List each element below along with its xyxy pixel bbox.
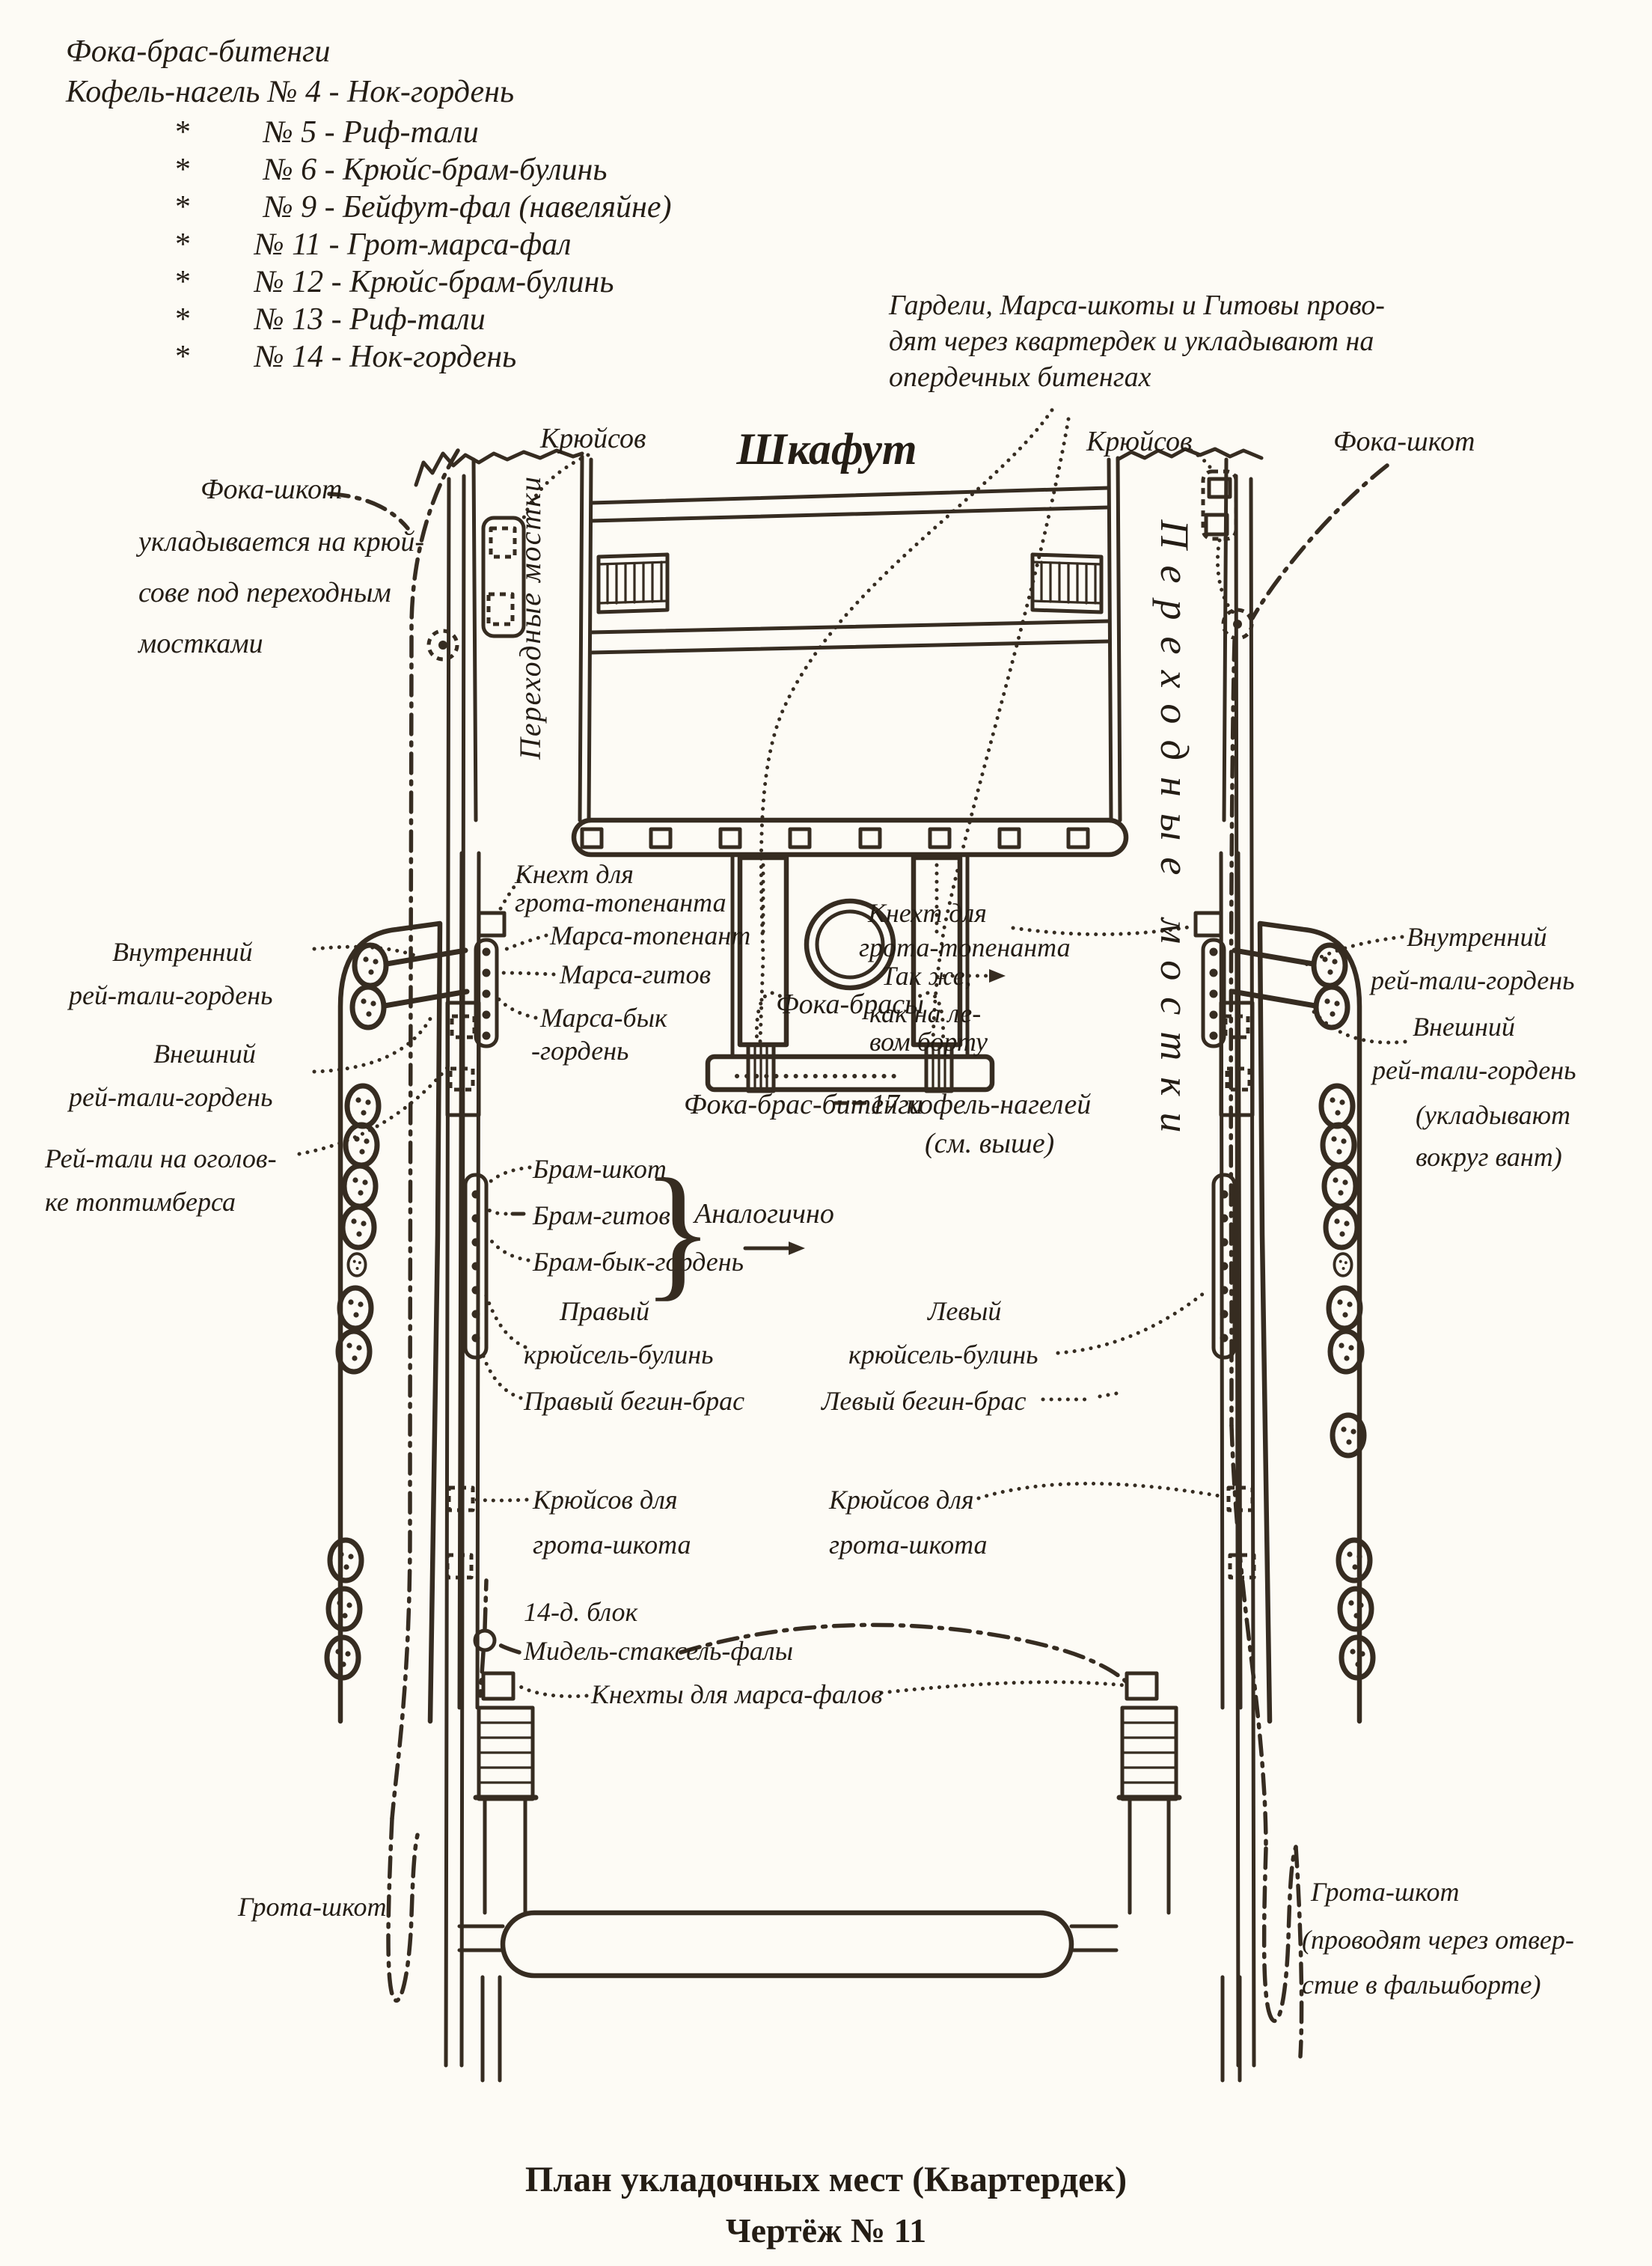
label-kryusov-grota-left: Крюйсов для xyxy=(532,1485,678,1515)
list-item: № 14 - Нок-гордень xyxy=(253,340,516,374)
label-vnesh-right: рей-тали-гордень xyxy=(1370,1055,1576,1085)
brace-glyph: } xyxy=(642,1149,714,1314)
caption-title: План укладочных мест (Квартердек) xyxy=(525,2160,1127,2199)
label-kryusov-grota-right: Крюйсов для xyxy=(828,1485,974,1515)
label-vnutr-left: Внутренний xyxy=(112,937,253,967)
label-knehty-marsa: Кнехты для марса-фалов xyxy=(590,1679,883,1709)
label-vnesh-right: (укладывают xyxy=(1416,1100,1570,1130)
waist-title: Шкафут xyxy=(735,424,917,474)
label-vnesh-right: Внешний xyxy=(1413,1012,1515,1042)
list-item: № 13 - Риф-тали xyxy=(253,302,486,337)
list-item: № 11 - Грот-марса-фал xyxy=(253,227,572,262)
label-vnutr-right: рей-тали-гордень xyxy=(1368,965,1575,995)
label-blok: 14-д. блок xyxy=(524,1597,639,1627)
label-foka-note: сове под переходным xyxy=(138,577,391,608)
belaying-plan-drawing: Фока-брас-битенги Кофель-нагель № 4 - Но… xyxy=(0,0,1652,2266)
label-grota-shkot-right: (проводят через отвер- xyxy=(1302,1925,1574,1955)
caption-number: Чертёж № 11 xyxy=(726,2211,926,2250)
label-foka-note: мостками xyxy=(137,628,263,659)
label-grota-shkot-right: стие в фальшборте) xyxy=(1302,1970,1541,2000)
star-mark: * xyxy=(174,115,189,150)
list-item: № 12 - Крюйс-брам-булинь xyxy=(253,265,614,299)
label-takzhe: Так же, xyxy=(881,961,972,991)
label-kneht-left: Кнехт для xyxy=(514,859,634,889)
label-grota-shkot-left: Грота-шкот xyxy=(237,1892,387,1922)
list-item: № 5 - Риф-тали xyxy=(262,115,479,150)
label-kryusov-grota-left: грота-шкота xyxy=(533,1530,691,1560)
label-takzhe: как на ле- xyxy=(869,998,981,1028)
list-title: Фока-брас-битенги xyxy=(66,34,330,69)
caption: План укладочных мест (Квартердек) Чертёж… xyxy=(525,2160,1127,2250)
brace-bitt-bar xyxy=(708,1057,992,1090)
label-marsa-gitov: Марса-гитов xyxy=(559,959,711,989)
label-kneht-left: грота-топенанта xyxy=(515,888,726,917)
routing-note: Гардели, Марса-шкоты и Гитовы прово- дят… xyxy=(888,290,1385,393)
label-nageli: 17 кофель-нагелей xyxy=(871,1089,1091,1120)
scanned-page: Фока-брас-битенги Кофель-нагель № 4 - Но… xyxy=(0,0,1652,2266)
star-mark: * xyxy=(174,153,189,187)
label-kryusov-right: Крюйсов xyxy=(1086,426,1192,457)
label-kneht-right: грота-топенанта xyxy=(859,932,1071,962)
brace-block-left xyxy=(748,1045,774,1091)
label-vnutr-left: рей-тали-гордень xyxy=(67,980,273,1010)
list-intro: Кофель-нагель № 4 - Нок-гордень xyxy=(65,75,514,109)
label-vnutr-right: Внутренний xyxy=(1407,922,1547,952)
star-mark: * xyxy=(174,340,189,374)
star-mark: * xyxy=(174,190,189,225)
label-levyi-kryusel: Левый xyxy=(927,1296,1001,1326)
label-analogichno: Аналогично xyxy=(692,1198,834,1230)
label-grota-shkot-right: Грота-шкот xyxy=(1310,1877,1460,1907)
label-kneht-right: Кнехт для xyxy=(867,898,987,928)
grating-left xyxy=(599,555,667,612)
label-pravyi-kryusel: Правый xyxy=(559,1296,649,1326)
svg-text:опердечных битенгах: опердечных битенгах xyxy=(889,361,1151,393)
label-foka-note: укладывается на крюй- xyxy=(135,526,424,558)
star-mark: * xyxy=(174,302,189,337)
label-pravyi-kryusel: крюйсель-булинь xyxy=(524,1340,713,1369)
star-mark: * xyxy=(174,227,189,262)
label-gangway-right: Переходные мостки xyxy=(1152,519,1197,1149)
label-nageli: (см. выше) xyxy=(925,1128,1054,1159)
label-kryusov-grota-right: грота-шкота xyxy=(829,1530,988,1560)
list-item: № 6 - Крюйс-брам-булинь xyxy=(262,153,607,187)
label-pravyi-begin: Правый бегин-брас xyxy=(523,1386,744,1416)
right-bulwark xyxy=(1233,476,1373,2065)
grating-right xyxy=(1032,555,1101,612)
label-foka-note: Фока-шкот xyxy=(201,474,343,505)
list-item: № 9 - Бейфут-фал (навеляйне) xyxy=(262,190,671,225)
svg-text:дят через квартердек и укладыв: дят через квартердек и укладывают на xyxy=(889,326,1374,357)
label-reytali: Рей-тали на оголов- xyxy=(44,1143,277,1173)
label-gangway-left: Переходные мостки xyxy=(513,475,547,760)
label-vnesh-left: Внешний xyxy=(153,1039,256,1069)
label-foka-shkot-right: Фока-шкот xyxy=(1333,426,1475,457)
waist-deck xyxy=(589,459,1111,820)
label-marsa-byk: -гордень xyxy=(531,1036,628,1066)
label-vnesh-right: вокруг вант) xyxy=(1416,1142,1562,1172)
stowed-spar xyxy=(459,1913,1116,1976)
label-marsa-topenant: Марса-топенант xyxy=(549,920,750,950)
fife-rail xyxy=(574,820,1126,855)
label-kryusov-left: Крюйсов xyxy=(539,423,646,454)
label-vnesh-left: рей-тали-гордень xyxy=(67,1082,273,1112)
pin-list: Фока-брас-битенги Кофель-нагель № 4 - Но… xyxy=(65,34,671,374)
label-levyi-begin: Левый бегин-брас xyxy=(821,1386,1026,1416)
label-midel: Мидель-стаксель-фалы xyxy=(523,1636,793,1666)
star-mark: * xyxy=(174,265,189,299)
label-levyi-kryusel: крюйсель-булинь xyxy=(848,1340,1038,1369)
label-reytali: ке топтимберса xyxy=(45,1187,236,1217)
label-takzhe: вом борту xyxy=(869,1027,988,1057)
label-marsa-byk: Марса-бык xyxy=(539,1003,668,1033)
svg-text:Гардели, Марса-шкоты и Гитовы: Гардели, Марса-шкоты и Гитовы прово- xyxy=(888,290,1385,321)
